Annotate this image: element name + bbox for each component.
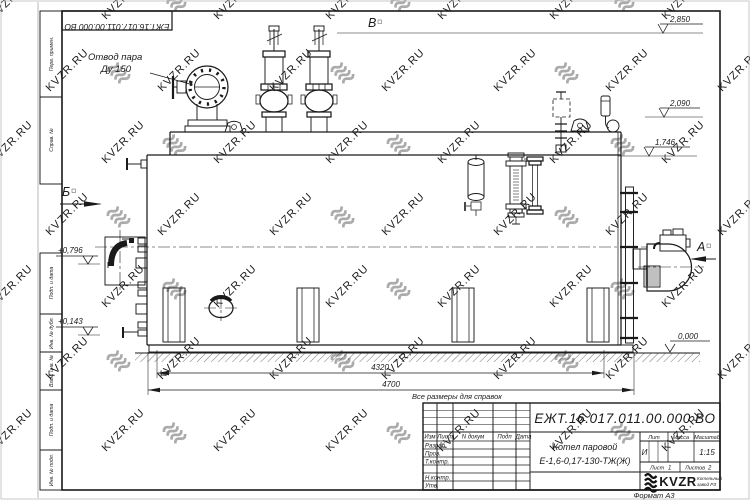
watermark-logo-icon (162, 421, 186, 445)
kvzr-logo-sub1: Котельный (697, 475, 722, 481)
watermark-text: KVZR.RU (100, 119, 148, 167)
tb-col-izm: Изм (424, 435, 435, 441)
view-a-marker: А (690, 240, 716, 262)
watermark-logo-icon (554, 205, 578, 229)
margin-label: Подп. и дата (49, 404, 55, 437)
watermark-text: KVZR.RU (156, 191, 204, 239)
margin-label: Взам. инв. № (49, 355, 55, 387)
kvzr-logo-text: KVZR (659, 474, 697, 489)
watermark-text: KVZR.RU (0, 263, 35, 311)
level-mark-0000: 0,000 (665, 332, 710, 352)
watermark-logo-icon (386, 133, 410, 157)
support-channel (163, 288, 185, 342)
watermark-logo-icon (554, 61, 578, 85)
level-mark-2850: 2,850 (337, 15, 703, 33)
tb-row-prov: Пров. (425, 452, 441, 458)
margin-label: Справ. № (49, 128, 55, 152)
watermark-logo-icon (162, 133, 186, 157)
kvzr-logo: KVZR Котельный завод РЗ (645, 474, 722, 492)
format-label: Формат А3 (633, 491, 675, 500)
watermark-text: KVZR.RU (604, 191, 652, 239)
watermark-logo-icon (162, 277, 186, 301)
view-v-label: В (368, 16, 376, 30)
tb-lit-value: И (642, 448, 648, 457)
tb-list-value: 1 (668, 466, 671, 472)
steam-outlet-label-line1: Отвод пара (88, 52, 142, 63)
watermark-text: KVZR.RU (380, 47, 428, 95)
tb-row-nkontr: Н.контр. (425, 476, 450, 482)
boiler-drawing: KVZR.RUKVZR.RUKVZR.RUKVZR.RUKVZR.RUKVZR.… (0, 0, 750, 500)
drawing-sheet: KVZR.RUKVZR.RUKVZR.RUKVZR.RUKVZR.RUKVZR.… (0, 0, 750, 500)
watermark-text: KVZR.RU (660, 263, 708, 311)
level-value: 2,090 (669, 99, 691, 108)
tb-row-utv: Утв. (424, 484, 439, 490)
steam-outlet-label-line2: Ду 150 (100, 64, 132, 75)
view-a-label: А (696, 240, 705, 254)
front-wall-nozzles (123, 158, 147, 338)
watermark-text: KVZR.RU (548, 263, 596, 311)
dim-value: 4700 (382, 380, 400, 389)
tb-masshtab-header: Масштаб (694, 435, 721, 441)
watermark-logo-icon (386, 277, 410, 301)
level-value: +0,143 (58, 317, 83, 326)
tb-row-tkontr: Т.контр. (425, 460, 449, 466)
watermark-text: KVZR.RU (268, 191, 316, 239)
watermark-text: KVZR.RU (436, 263, 484, 311)
margin-label: Перв. примен. (49, 37, 55, 71)
watermark-logo-icon (106, 349, 130, 373)
pressure-gauge (601, 96, 619, 132)
gauge-glass-frame (506, 153, 526, 224)
kvzr-wave-icon (645, 474, 657, 491)
watermark-logo-icon (386, 421, 410, 445)
watermark-text: KVZR.RU (100, 263, 148, 311)
tb-col-podp: Подп (497, 435, 512, 441)
watermark-logo-icon (330, 61, 354, 85)
view-b-label: Б (62, 185, 70, 199)
level-value: 1,746 (655, 138, 676, 147)
level-value: 2,850 (669, 15, 691, 24)
view-v-marker: В (368, 16, 382, 30)
watermark-logo-icon (330, 205, 354, 229)
tb-col-ndokum: N докум (462, 435, 485, 441)
support-channel (297, 288, 319, 342)
level-value: +0,796 (58, 246, 83, 255)
flipped-doc-number-box: ЕЖТ.16.017.011.00.000 ВО (62, 11, 172, 32)
flipped-doc-number: ЕЖТ.16.017.011.00.000 ВО (64, 22, 169, 32)
watermark-text: KVZR.RU (324, 407, 372, 455)
dim-value: 4320 (371, 363, 389, 372)
tb-masshtab-value: 1:15 (699, 448, 715, 457)
reference-note: Все размеры для справок (412, 392, 502, 401)
watermark-logo-icon (106, 205, 130, 229)
watermark-text: KVZR.RU (324, 263, 372, 311)
watermark-text: KVZR.RU (548, 119, 596, 167)
tb-listov-label: Листов (684, 466, 705, 472)
ground-hatch (135, 353, 700, 362)
tb-massa-header: Масса (673, 435, 689, 441)
tb-list-label: Лист (649, 466, 665, 472)
watermark-text: KVZR.RU (0, 407, 35, 455)
tb-listov-value: 2 (707, 466, 712, 472)
margin-label: Инв. № подл. (49, 454, 55, 486)
tb-lit-header: Лит (647, 435, 660, 441)
product-name-line1: Котел паровой (553, 442, 618, 452)
margin-label: Инв. № дубл. (49, 317, 55, 349)
kvzr-logo-sub2: завод РЗ (696, 482, 716, 487)
watermark-text: KVZR.RU (212, 407, 260, 455)
safety-valve (301, 26, 337, 132)
manhole (204, 295, 238, 321)
tb-col-data: Дата (515, 435, 532, 441)
watermark-text: KVZR.RU (212, 263, 260, 311)
watermark-text: KVZR.RU (100, 407, 148, 455)
level-value: 0,000 (678, 332, 699, 341)
product-name-line2: Е-1,6-0,17-130-ТЖ(Ж) (539, 456, 630, 466)
watermark-text: KVZR.RU (0, 119, 35, 167)
support-channel (587, 288, 609, 342)
level-mark-2090: 2,090 (645, 99, 703, 117)
watermark-logo-icon (610, 133, 634, 157)
water-level-column (465, 155, 484, 216)
tb-col-list: Лист (436, 435, 452, 441)
base-skid (149, 345, 633, 352)
watermark-text: KVZR.RU (380, 191, 428, 239)
watermark-logo-icon (610, 277, 634, 301)
doc-number: ЕЖТ.16.017.011.00.000 ВО (534, 411, 715, 426)
margin-label: Подп. и дата (49, 267, 55, 300)
title-block: Изм Лист N докум Подп Дата Разраб. Пров.… (423, 403, 722, 500)
watermark-text: KVZR.RU (604, 47, 652, 95)
watermark-text: KVZR.RU (324, 119, 372, 167)
watermark-text: KVZR.RU (0, 0, 35, 22)
watermark-text: KVZR.RU (492, 47, 540, 95)
tb-row-razrab: Разраб. (425, 444, 447, 450)
